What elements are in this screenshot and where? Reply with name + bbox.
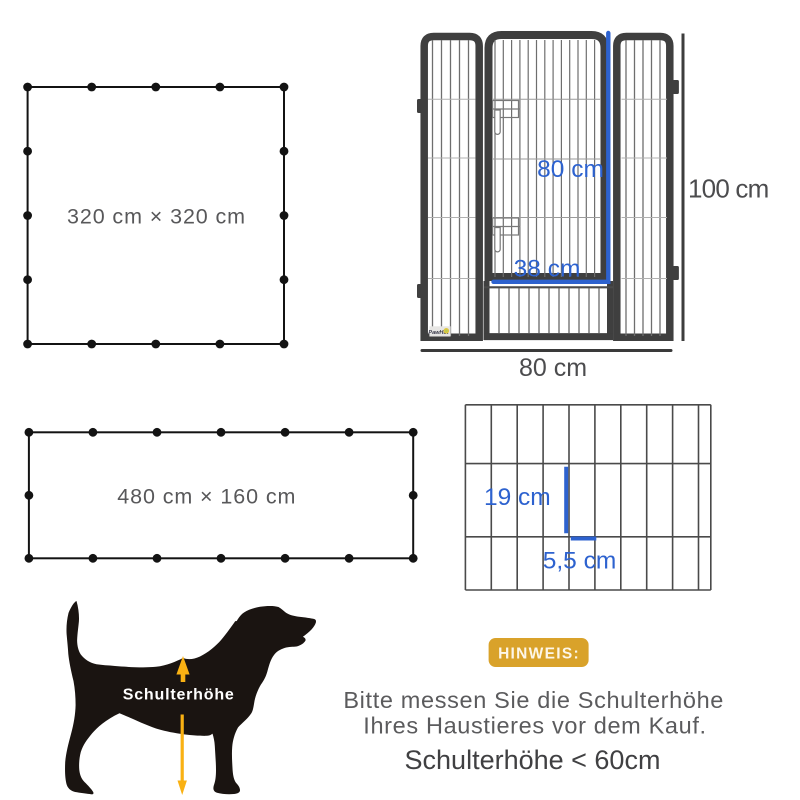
svg-text:5,5 cm: 5,5 cm xyxy=(543,548,617,575)
svg-text:Ihres Haustieres vor dem Kauf.: Ihres Haustieres vor dem Kauf. xyxy=(363,713,706,739)
svg-text:38 cm: 38 cm xyxy=(514,256,581,283)
svg-text:HINWEIS:: HINWEIS: xyxy=(498,646,580,663)
svg-text:80 cm: 80 cm xyxy=(537,156,604,183)
svg-text:Bitte messen Sie die Schulterh: Bitte messen Sie die Schulterhöhe xyxy=(343,687,724,713)
svg-text:100 cm: 100 cm xyxy=(688,174,768,204)
svg-text:Schulterhöhe < 60cm: Schulterhöhe < 60cm xyxy=(405,745,661,775)
svg-text:320 cm × 320 cm: 320 cm × 320 cm xyxy=(67,205,246,229)
svg-text:Schulterhöhe: Schulterhöhe xyxy=(123,687,235,704)
svg-text:80 cm: 80 cm xyxy=(519,354,587,382)
svg-text:480 cm × 160 cm: 480 cm × 160 cm xyxy=(117,485,296,509)
svg-text:19 cm: 19 cm xyxy=(484,484,551,511)
